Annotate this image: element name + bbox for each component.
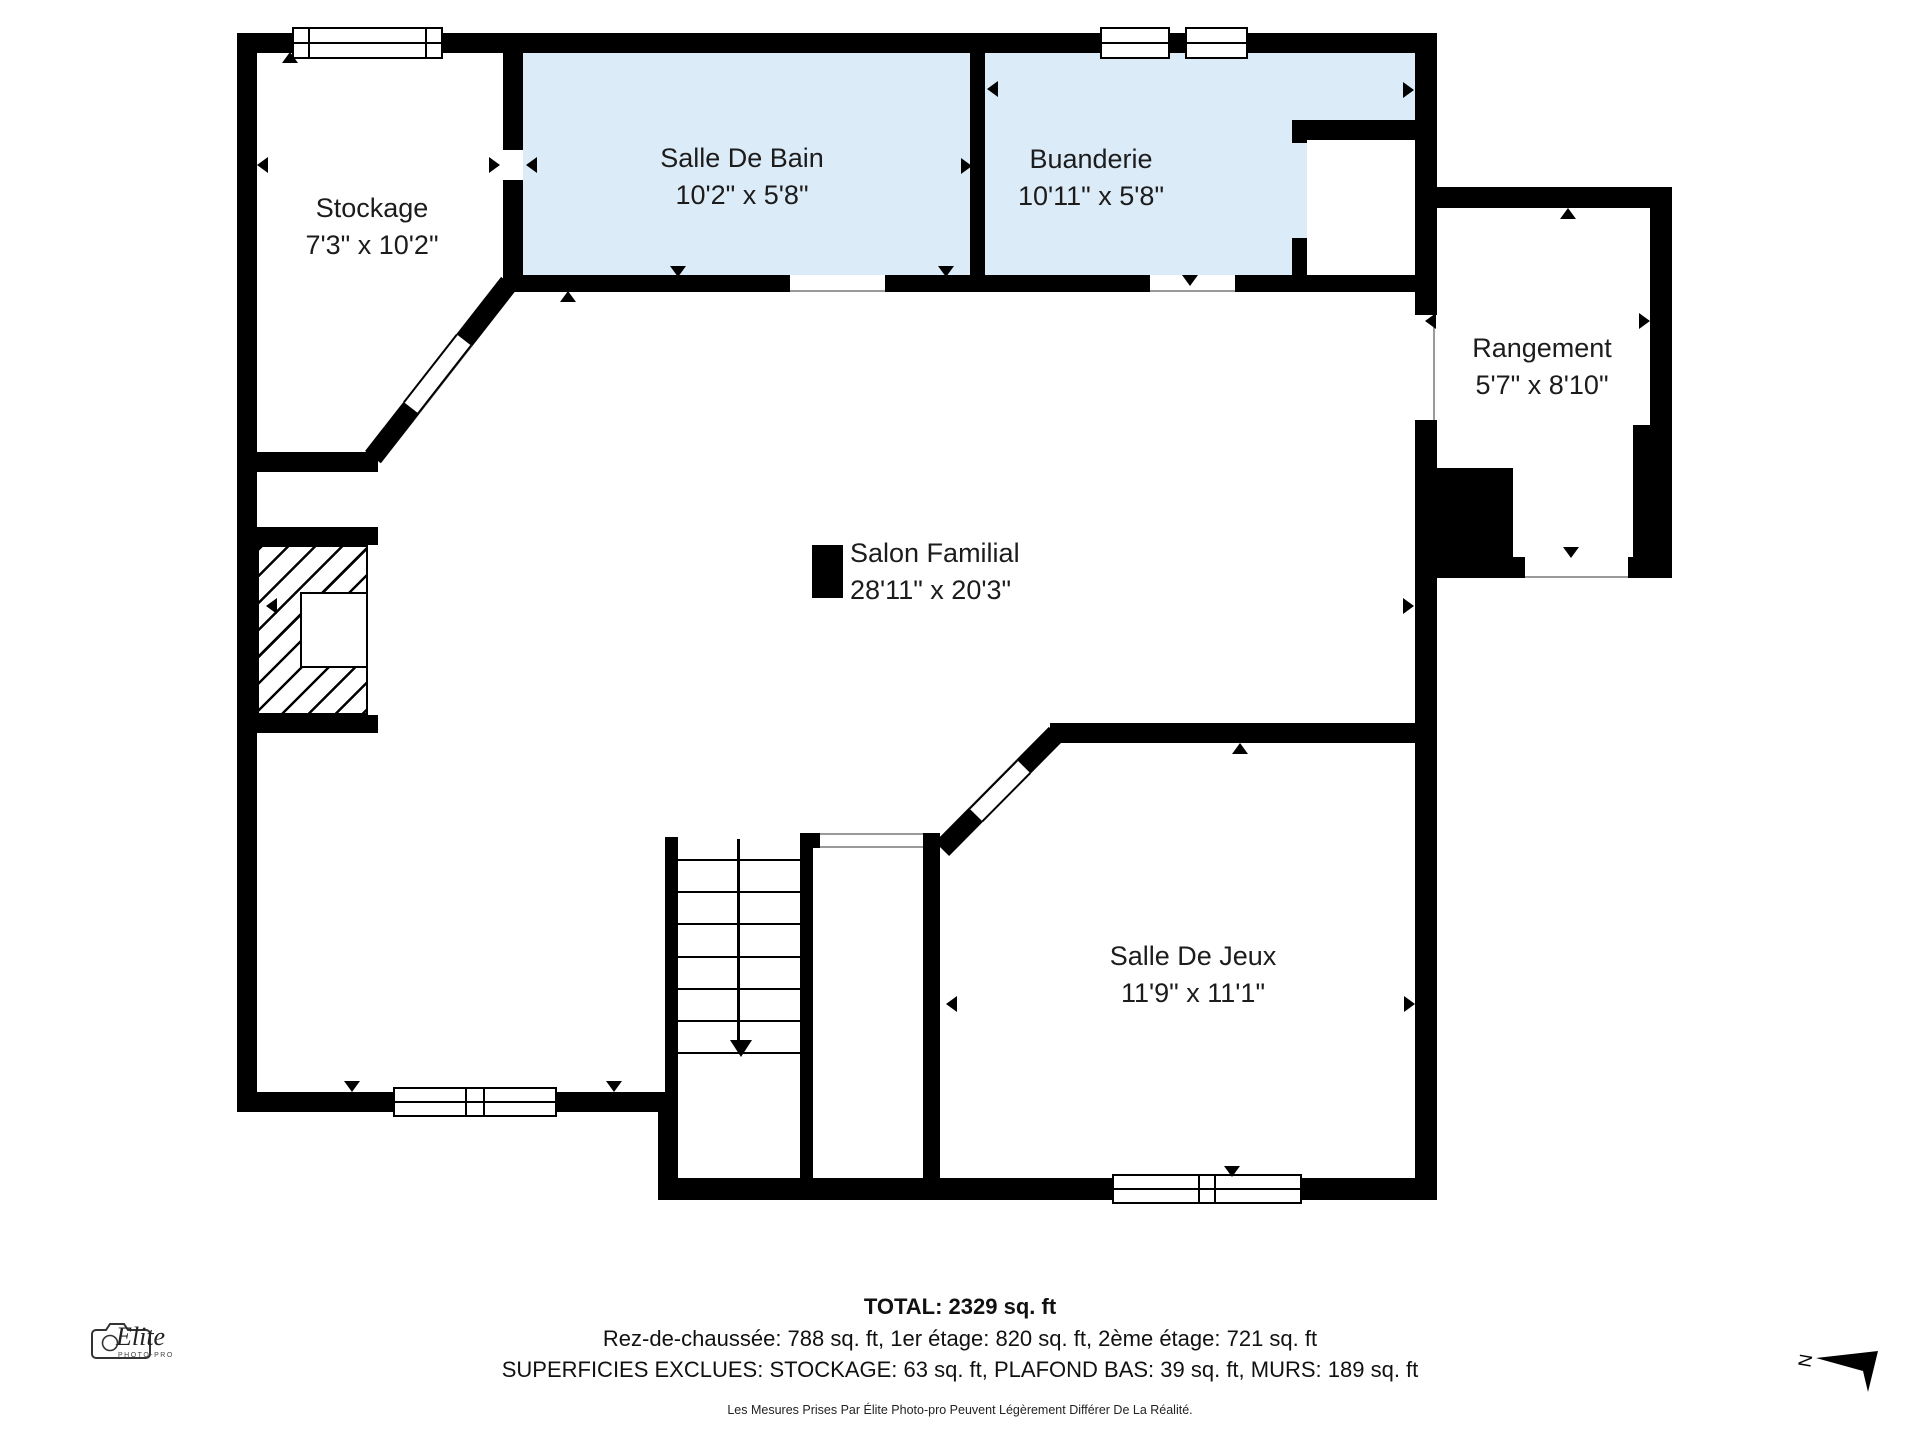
room-dims: 11'9" x 11'1" [1053, 975, 1333, 1012]
room-dims: 7'3" x 10'2" [252, 227, 492, 264]
logo-sub-text: PHOTO-PRO [118, 1352, 174, 1359]
wall-closet-left-lower [1292, 238, 1307, 292]
marker-icon [257, 157, 268, 173]
window-midline [395, 1101, 555, 1103]
window-midline [1187, 42, 1246, 44]
room-label-salon-familial: Salon Familial 28'11" x 20'3" [850, 535, 1110, 609]
wall-corridor-stub-left [813, 833, 820, 848]
excluded-areas-text: SUPERFICIES EXCLUES: STOCKAGE: 63 sq. ft… [0, 1357, 1920, 1383]
wall-stockage-right-upper [503, 53, 523, 150]
marker-icon [526, 157, 537, 173]
marker-icon [1232, 743, 1248, 754]
marker-icon [606, 1081, 622, 1092]
floor-areas-text: Rez-de-chaussée: 788 sq. ft, 1er étage: … [0, 1326, 1920, 1352]
stair-run-divider [737, 839, 740, 1041]
wall-closet-left-upper [1292, 120, 1307, 143]
window [393, 1087, 557, 1117]
room-dims: 5'7" x 8'10" [1422, 367, 1662, 404]
wall-sdj-left [923, 848, 940, 1180]
marker-icon [282, 52, 298, 63]
corridor-opening-top [820, 833, 923, 835]
marker-icon [1425, 313, 1436, 329]
wall-stair-right [800, 833, 813, 1198]
marker-icon [1560, 208, 1576, 219]
logo-brand-text: Elite [116, 1322, 165, 1352]
room-name: Salon Familial [850, 535, 1110, 572]
north-compass: N [1790, 1340, 1900, 1420]
wall-stair-left-thick [658, 1092, 678, 1198]
disclaimer-text: Les Mesures Prises Par Élite Photo-pro P… [0, 1403, 1920, 1417]
room-label-salle-de-bain: Salle De Bain 10'2" x 5'8" [602, 140, 882, 214]
marker-icon [938, 266, 954, 277]
sdj-diagonal-door [969, 760, 1031, 822]
marker-icon [1224, 1166, 1240, 1177]
room-label-salle-de-jeux: Salle De Jeux 11'9" x 11'1" [1053, 938, 1333, 1012]
wall-bottom-right [658, 1178, 1437, 1200]
wall-stair-left [665, 837, 678, 1092]
bain-door-threshold [790, 290, 885, 292]
window [1112, 1174, 1302, 1204]
room-dims: 10'2" x 5'8" [602, 177, 882, 214]
room-name: Rangement [1422, 330, 1662, 367]
marker-icon [1403, 598, 1414, 614]
wall-stockage-right-lower [503, 180, 523, 277]
rangement-bottom-door-face [1525, 576, 1628, 578]
room-dims: 10'11" x 5'8" [951, 178, 1231, 215]
window-cap [425, 29, 427, 57]
window-mullion [1198, 1176, 1200, 1202]
wall-wetrooms-bottom-a [503, 275, 790, 292]
fireplace-firebox [300, 592, 368, 668]
marker-icon [620, 38, 636, 49]
marker-icon [344, 1081, 360, 1092]
wall-wetrooms-bottom-c [1235, 275, 1437, 292]
wall-sdj-top [1050, 723, 1415, 743]
stockage-diagonal-door [403, 334, 472, 414]
area-summary: TOTAL: 2329 sq. ft Rez-de-chaussée: 788 … [0, 1294, 1920, 1417]
wall-rangement-bottom-b [1628, 557, 1672, 578]
room-dims: 28'11" x 20'3" [850, 572, 1110, 609]
marker-icon [1563, 547, 1579, 558]
window-cap [308, 29, 310, 57]
marker-icon [560, 291, 576, 302]
marker-icon [1639, 313, 1650, 329]
window-midline [1114, 1188, 1300, 1190]
corridor-opening-bottom [820, 846, 923, 848]
room-label-stockage: Stockage 7'3" x 10'2" [252, 190, 492, 264]
window-mullion [483, 1089, 485, 1115]
marker-icon [946, 996, 957, 1012]
marker-icon [1065, 40, 1081, 51]
room-label-buanderie: Buanderie 10'11" x 5'8" [951, 141, 1231, 215]
window-mullion [1214, 1176, 1216, 1202]
wall-wetrooms-bottom-b [885, 275, 1150, 292]
wall-closet-top [1292, 120, 1420, 140]
window [1185, 27, 1248, 59]
window [1100, 27, 1170, 59]
wall-rangement-top [1415, 187, 1672, 208]
marker-icon [1403, 82, 1414, 98]
floor-plan-canvas: Stockage 7'3" x 10'2" Salle De Bain 10'2… [0, 0, 1920, 1440]
window-midline [1102, 42, 1168, 44]
marker-icon [489, 157, 500, 173]
fireplace-top-bar [257, 527, 378, 545]
room-label-rangement: Rangement 5'7" x 8'10" [1422, 330, 1662, 404]
buanderie-closet-floor [1307, 140, 1415, 277]
rangement-chase-block [1415, 468, 1513, 557]
marker-icon [670, 266, 686, 277]
room-name: Stockage [252, 190, 492, 227]
wall-stockage-stub [237, 452, 378, 472]
room-name: Buanderie [951, 141, 1231, 178]
marker-icon [1182, 275, 1198, 286]
window [292, 27, 443, 59]
total-area-text: TOTAL: 2329 sq. ft [0, 1294, 1920, 1320]
salon-column-block [812, 545, 843, 598]
stair-down-arrow-icon [730, 1040, 752, 1057]
room-name: Salle De Bain [602, 140, 882, 177]
wall-rangement-right-thick [1633, 425, 1650, 578]
wall-right-upper [1415, 33, 1437, 315]
window-mullion [465, 1089, 467, 1115]
marker-icon [987, 81, 998, 97]
marker-icon [1404, 996, 1415, 1012]
fireplace-bottom-bar [257, 715, 378, 733]
marker-icon [266, 598, 277, 614]
north-arrow-icon [1810, 1340, 1900, 1410]
wall-rangement-bottom-a [1415, 557, 1525, 578]
elite-photo-pro-logo: Elite PHOTO-PRO [88, 1312, 208, 1372]
buanderie-door-threshold [1150, 290, 1235, 292]
room-name: Salle De Jeux [1053, 938, 1333, 975]
window-midline [294, 42, 441, 44]
